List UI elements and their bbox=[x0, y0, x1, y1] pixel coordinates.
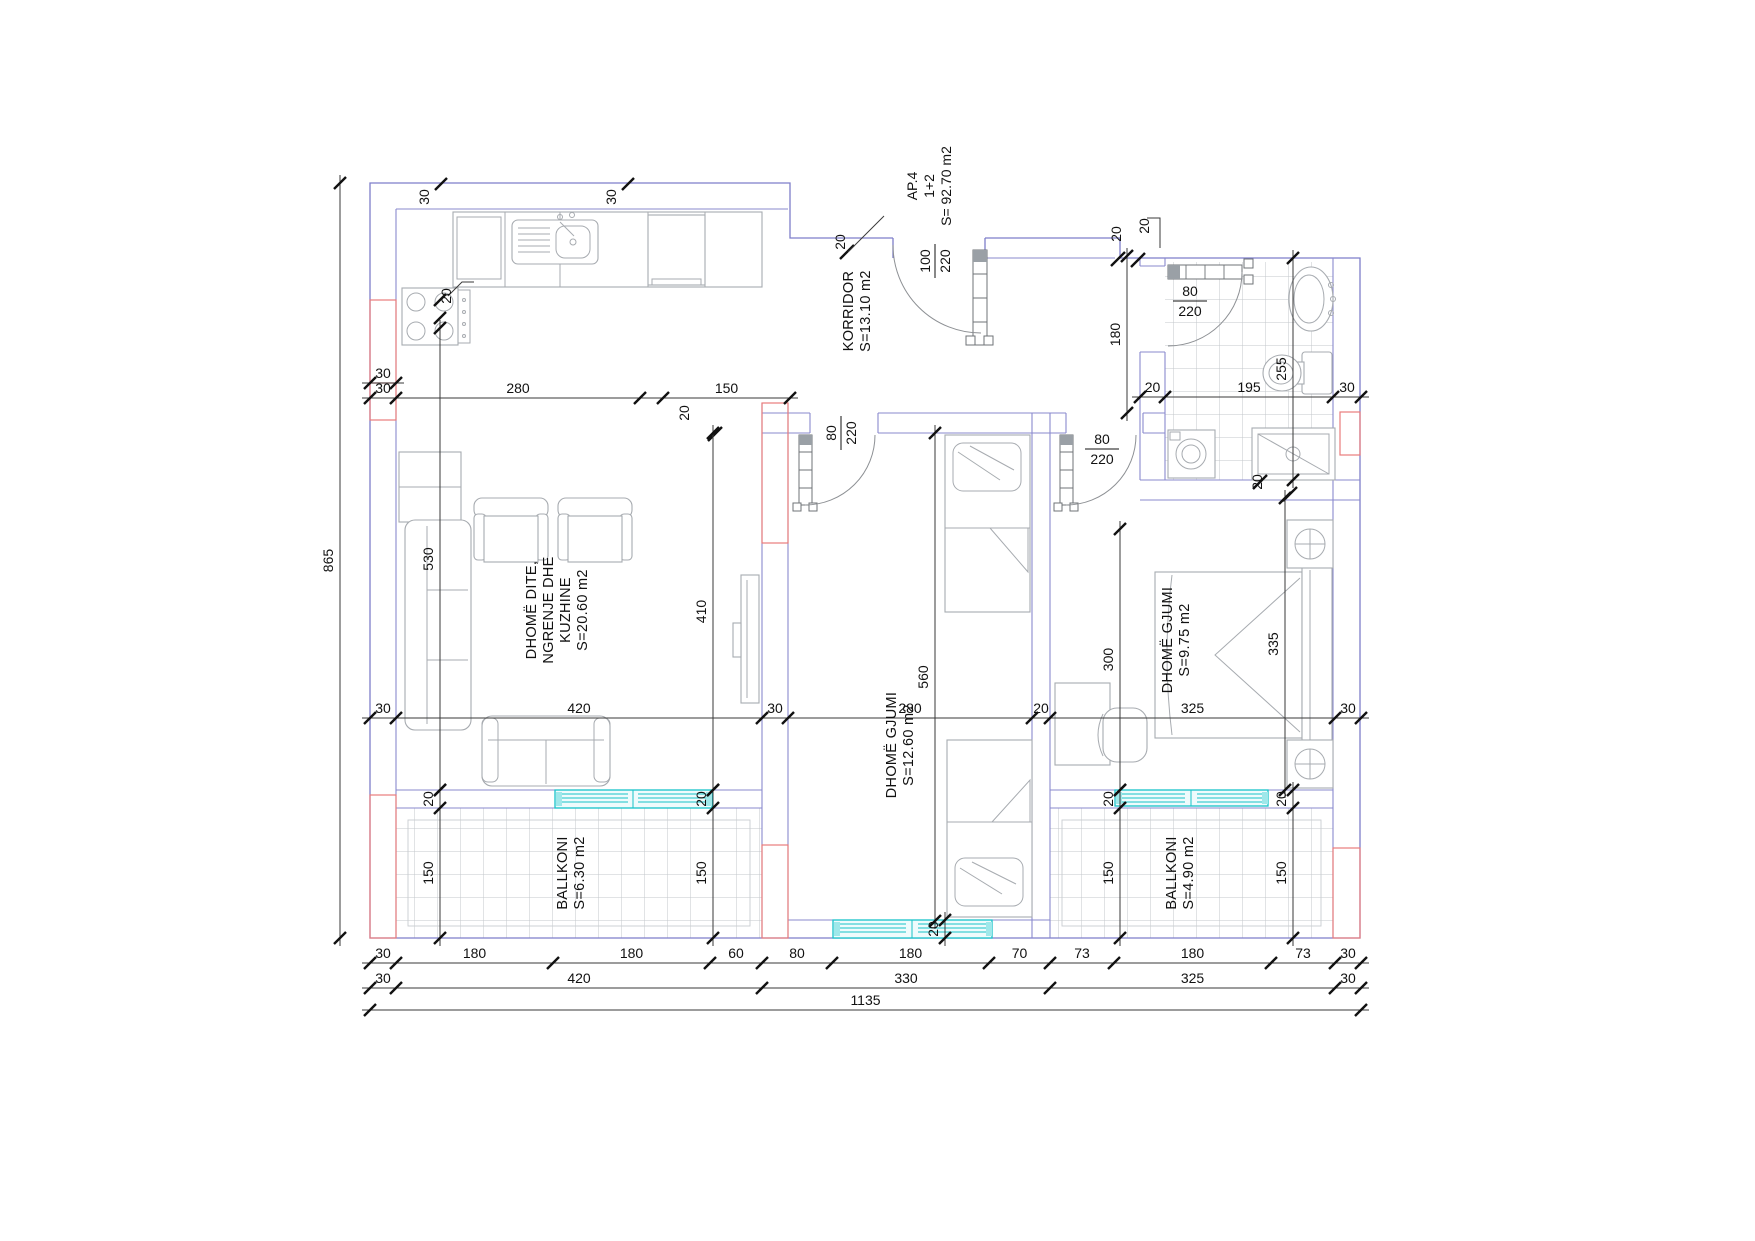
bed-single-1 bbox=[945, 435, 1030, 612]
dim-note: 30 bbox=[603, 189, 619, 205]
tv-unit bbox=[733, 575, 759, 703]
dim-note: 20 bbox=[1136, 218, 1152, 234]
room-label: DHOMË DITE, bbox=[523, 561, 540, 659]
dim-label: 30 bbox=[375, 945, 391, 961]
door-size-bottom: 220 bbox=[937, 249, 953, 273]
nightstand bbox=[1287, 740, 1333, 788]
room-label: S=4.90 m2 bbox=[1181, 836, 1197, 909]
dim-label: 180 bbox=[899, 945, 923, 961]
door-size-top: 100 bbox=[917, 249, 933, 273]
dim-label: 180 bbox=[1107, 323, 1123, 347]
living-shelf bbox=[399, 452, 461, 522]
door-size-bottom: 220 bbox=[843, 421, 859, 445]
dim-label: 20 bbox=[1273, 791, 1289, 807]
room-label: BALLKONI bbox=[1164, 836, 1180, 909]
door-size-bottom: 220 bbox=[1178, 303, 1202, 319]
room-label: S=12.60 m2 bbox=[901, 704, 917, 786]
armchair bbox=[474, 498, 548, 562]
dim-label: 150 bbox=[1100, 861, 1116, 885]
dim-note: 20 bbox=[676, 405, 692, 421]
floor-plan-sheet: 3018018060801807073180733030420330325301… bbox=[0, 0, 1755, 1241]
dim-label: 255 bbox=[1273, 357, 1289, 381]
dim-label: 325 bbox=[1181, 970, 1205, 986]
floor-plan-canvas: 3018018060801807073180733030420330325301… bbox=[0, 0, 1755, 1241]
dim-label: 300 bbox=[1100, 648, 1116, 672]
dim-label: 530 bbox=[420, 547, 436, 571]
dim-label: 73 bbox=[1295, 945, 1311, 961]
dim-label: 30 bbox=[767, 700, 783, 716]
room-label: DHOMË GJUMI bbox=[883, 692, 900, 798]
dim-label: 150 bbox=[420, 861, 436, 885]
dim-note: S= 92.70 m2 bbox=[938, 146, 954, 226]
armchair bbox=[558, 498, 632, 562]
dim-label: 60 bbox=[728, 945, 744, 961]
kitchen-sink bbox=[512, 213, 598, 265]
dim-label: 70 bbox=[1012, 945, 1028, 961]
dim-label: 30 bbox=[375, 970, 391, 986]
dim-label: 20 bbox=[925, 921, 941, 937]
dim-label: 20 bbox=[420, 791, 436, 807]
dim-label: 30 bbox=[375, 365, 391, 381]
dim-note: 30 bbox=[416, 189, 432, 205]
door-size-top: 80 bbox=[1094, 431, 1110, 447]
room-label: S=9.75 m2 bbox=[1177, 603, 1193, 676]
dim-label: 330 bbox=[894, 970, 918, 986]
dim-label: 20 bbox=[1033, 700, 1049, 716]
nightstand bbox=[1287, 520, 1333, 568]
room-label: NGRENJE DHE bbox=[541, 556, 557, 663]
door-size-top: 80 bbox=[823, 425, 839, 441]
room-label: KORRIDOR bbox=[841, 271, 857, 352]
dim-label: 195 bbox=[1237, 379, 1261, 395]
dim-label: 420 bbox=[567, 970, 591, 986]
room-label: S=6.30 m2 bbox=[572, 836, 588, 909]
door-size-top: 80 bbox=[1182, 283, 1198, 299]
dim-label: 335 bbox=[1265, 632, 1281, 656]
dim-label: 30 bbox=[375, 700, 391, 716]
dim-note: 1+2 bbox=[921, 174, 937, 198]
dim-label: 150 bbox=[715, 380, 739, 396]
dim-label: 20 bbox=[1100, 791, 1116, 807]
dim-label: 150 bbox=[1273, 861, 1289, 885]
door-size-label: 80220 bbox=[823, 416, 859, 450]
dim-label: 180 bbox=[1181, 945, 1205, 961]
dim-label: 1135 bbox=[850, 992, 880, 1008]
door-size-label: 100220 bbox=[917, 244, 953, 278]
dim-label: 560 bbox=[915, 665, 931, 689]
window-living-balcony bbox=[555, 790, 712, 808]
door-size-label: 80220 bbox=[1085, 431, 1119, 467]
dim-label: 180 bbox=[463, 945, 487, 961]
desk-chair bbox=[1098, 708, 1147, 762]
sofa-vertical bbox=[405, 520, 471, 730]
room-label: S=13.10 m2 bbox=[858, 270, 874, 352]
washing-machine bbox=[1168, 430, 1215, 478]
room-label: S=20.60 m2 bbox=[575, 569, 591, 651]
dim-note: 20 bbox=[438, 288, 454, 304]
dim-note: AP.4 bbox=[904, 172, 920, 201]
dim-label: 20 bbox=[693, 791, 709, 807]
kitchen-stove bbox=[402, 288, 470, 345]
window-bedroom-2-balcony bbox=[1115, 790, 1268, 806]
dim-label: 280 bbox=[506, 380, 530, 396]
dim-label: 30 bbox=[375, 380, 391, 396]
room-label: KUZHINE bbox=[558, 577, 574, 643]
bed-single-2 bbox=[947, 740, 1032, 917]
dim-note: 20 bbox=[832, 234, 848, 250]
dim-label: 180 bbox=[620, 945, 644, 961]
window-bedroom-1 bbox=[833, 920, 992, 938]
dim-label: 73 bbox=[1074, 945, 1090, 961]
dim-note: 20 bbox=[1108, 226, 1124, 242]
room-label: DHOMË GJUMI bbox=[1159, 587, 1176, 693]
dim-label: 30 bbox=[1340, 700, 1356, 716]
room-label: BALLKONI bbox=[555, 836, 571, 909]
door-bedroom-1 bbox=[793, 435, 875, 511]
door-size-bottom: 220 bbox=[1090, 451, 1114, 467]
dim-label: 150 bbox=[693, 861, 709, 885]
dim-label: 30 bbox=[1340, 970, 1356, 986]
dim-label: 80 bbox=[789, 945, 805, 961]
sofa-horizontal bbox=[482, 716, 610, 786]
dim-label: 20 bbox=[1145, 379, 1161, 395]
kitchen-fridge bbox=[648, 215, 705, 285]
dim-label: 420 bbox=[567, 700, 591, 716]
dim-label: 325 bbox=[1181, 700, 1205, 716]
dim-label: 410 bbox=[693, 600, 709, 624]
dim-label: 30 bbox=[1340, 945, 1356, 961]
dim-label: 865 bbox=[320, 549, 336, 573]
dim-label: 30 bbox=[1339, 379, 1355, 395]
kitchen-counter bbox=[453, 212, 762, 287]
dim-note: 20 bbox=[1249, 474, 1265, 490]
